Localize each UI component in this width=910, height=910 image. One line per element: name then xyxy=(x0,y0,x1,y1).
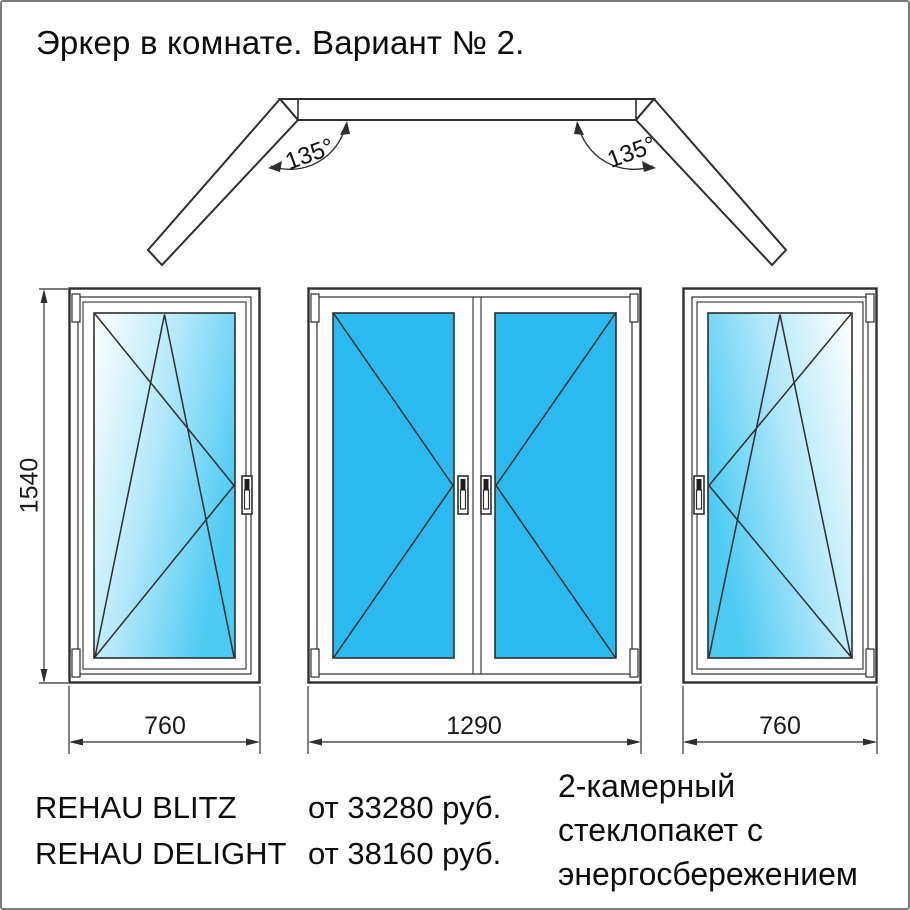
right-width-dimension-label: 760 xyxy=(719,712,841,741)
left-width-dimension-label: 760 xyxy=(104,712,226,741)
diagram-canvas: Эркер в комнате. Вариант № 2. xyxy=(0,0,910,910)
price-list: REHAU BLITZ от 33280 руб. REHAU DELIGHT … xyxy=(35,785,501,877)
center-right-sash-glass xyxy=(495,313,616,658)
center-window-bottom-left-hinge-icon xyxy=(311,649,319,677)
left-window-bottom-hinge-icon xyxy=(72,649,80,677)
price-row: REHAU BLITZ от 33280 руб. xyxy=(35,785,501,831)
plan-right-wing xyxy=(636,99,786,265)
right-window-top-hinge-icon xyxy=(866,294,874,322)
glazing-note-line: стеклопакет с xyxy=(558,808,858,852)
right-window xyxy=(682,287,878,684)
right-window-bottom-hinge-icon xyxy=(866,649,874,677)
center-right-sash-handle-icon xyxy=(481,476,491,514)
center-window-top-left-hinge-icon xyxy=(311,294,319,322)
left-window xyxy=(68,287,261,684)
right-window-glass xyxy=(708,313,852,658)
page-title: Эркер в комнате. Вариант № 2. xyxy=(36,24,525,62)
glazing-note-line: 2-камерный xyxy=(558,764,858,808)
left-angle-label: 135° xyxy=(282,133,338,175)
center-window-top-right-hinge-icon xyxy=(630,294,638,322)
bay-window-plan: 135° 135° xyxy=(122,82,802,277)
glazing-note-line: энергосбережением xyxy=(558,852,858,896)
price-row: REHAU DELIGHT от 38160 руб. xyxy=(35,831,501,877)
plan-center-section xyxy=(280,99,654,120)
product-name: REHAU BLITZ xyxy=(35,785,308,831)
left-window-top-hinge-icon xyxy=(72,294,80,322)
center-left-sash-glass xyxy=(333,313,454,658)
center-window xyxy=(307,287,642,684)
center-left-sash-handle-icon xyxy=(458,476,468,514)
product-price: от 38160 руб. xyxy=(308,831,501,877)
center-width-dimension-label: 1290 xyxy=(413,712,535,741)
center-window-bottom-right-hinge-icon xyxy=(630,649,638,677)
left-window-glass xyxy=(94,313,235,658)
plan-left-wing xyxy=(148,99,298,265)
height-dimension-label: 1540 xyxy=(16,444,45,528)
product-price: от 33280 руб. xyxy=(308,785,501,831)
product-name: REHAU DELIGHT xyxy=(35,831,308,877)
glazing-note: 2-камерный стеклопакет с энергосбережени… xyxy=(558,764,858,896)
left-window-handle-icon xyxy=(242,476,252,514)
right-window-handle-icon xyxy=(694,476,704,514)
